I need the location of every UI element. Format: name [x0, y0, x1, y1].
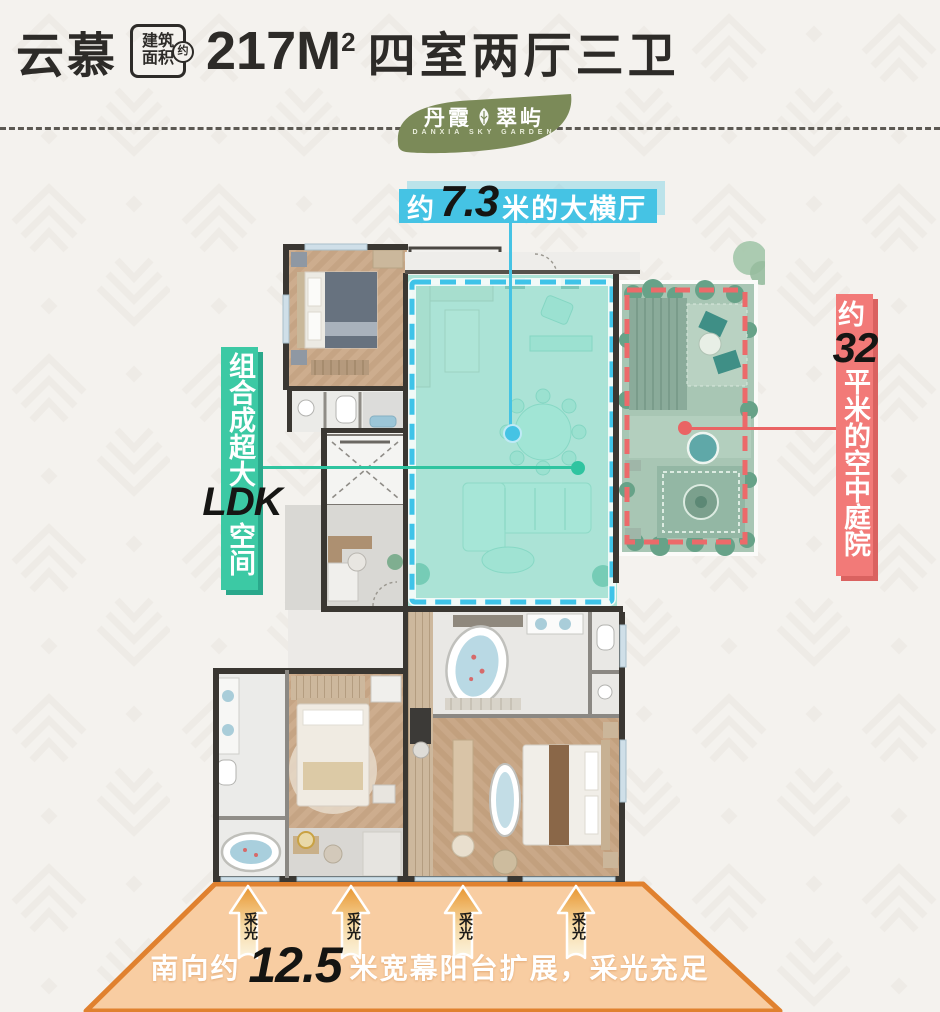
balcony-caption-value: 12.5 [248, 936, 341, 994]
ldk-highlight: LDK [200, 480, 284, 525]
daylight-label-2: 采光 [343, 912, 361, 940]
leaf-icon [476, 107, 492, 127]
hall-suffix: 米的大横厅 [502, 187, 647, 226]
area-superscript: 2 [341, 27, 355, 57]
hall-prefix: 约 [407, 187, 436, 226]
product-name: 云慕 [16, 16, 118, 86]
logo-name: 丹霞 翠屿 [394, 102, 574, 132]
area-badge-approx: 约 [172, 41, 194, 63]
daylight-label-4: 采光 [568, 912, 586, 940]
courtyard-prefix: 约 [841, 300, 869, 327]
ldk-pointer-line [252, 466, 578, 469]
hall-pointer-line [509, 222, 512, 428]
logo-name-right: 翠屿 [496, 102, 544, 132]
poster: 云慕 建筑 面积 约 217M2 四室两厅三卫 丹霞 翠屿 DANXIA SKY… [0, 0, 940, 1012]
ldk-text-top: 组合成超大 [226, 352, 254, 487]
area-badge-line1: 建筑 [142, 34, 174, 51]
brand-logo: 丹霞 翠屿 DANXIA SKY GARDEN [394, 93, 574, 157]
hall-annotation-label: 约 7.3 米的大横厅 [399, 189, 657, 223]
balcony-caption-suffix: 米宽幕阳台扩展，采光充足 [350, 947, 710, 987]
ldk-pointer-dot [571, 461, 585, 475]
area-badge: 建筑 面积 约 [130, 24, 186, 78]
courtyard-suffix: 平米的空中庭院 [841, 368, 869, 557]
logo-subtitle: DANXIA SKY GARDEN [394, 129, 574, 136]
courtyard-value: 32 [820, 324, 890, 372]
logo-name-left: 丹霞 [424, 102, 472, 132]
balcony-caption: 南向约 12.5 米宽幕阳台扩展，采光充足 [110, 938, 750, 996]
hall-pointer-dot [503, 424, 522, 443]
header: 云慕 建筑 面积 约 217M2 四室两厅三卫 [16, 16, 680, 86]
layout-text: 四室两厅三卫 [368, 16, 680, 86]
daylight-label-3: 采光 [455, 912, 473, 940]
area-value: 217M2 [206, 20, 356, 82]
ldk-text-bottom: 空间 [226, 522, 254, 576]
area-badge-line2: 面积 [142, 51, 174, 68]
courtyard-pointer-dot [678, 421, 692, 435]
hall-value: 7.3 [440, 177, 498, 227]
courtyard-pointer-line [685, 427, 836, 430]
balcony-caption-prefix: 南向约 [150, 947, 240, 987]
